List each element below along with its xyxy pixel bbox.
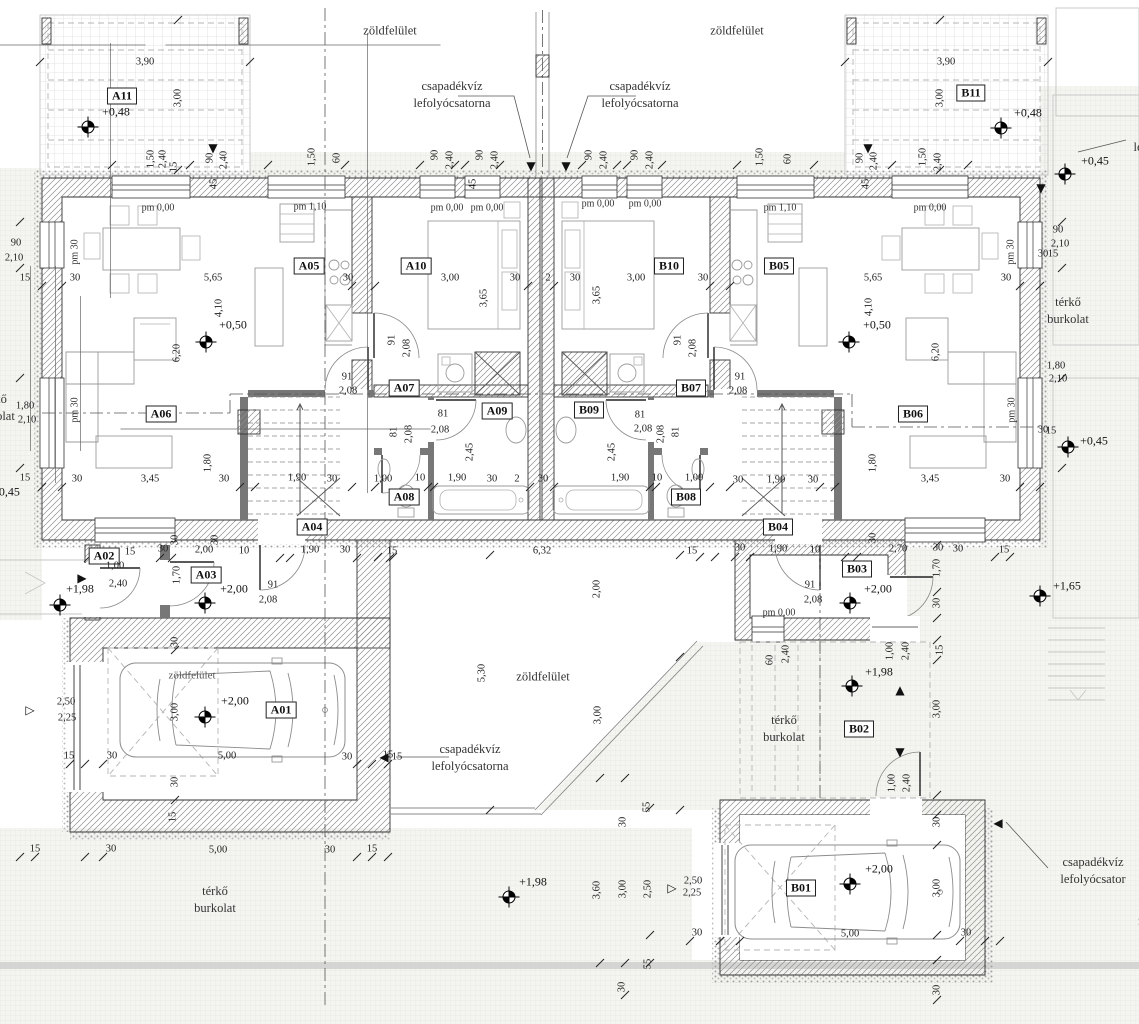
- survey-point-icon: [54, 599, 67, 612]
- dim-label: 2,40: [933, 153, 944, 171]
- dim-label: 1,50: [307, 148, 318, 166]
- dim-label: 91: [735, 372, 746, 383]
- area-label-line: csapadékvíz: [413, 78, 490, 95]
- dim-label: 91: [268, 580, 279, 591]
- level-label: +0,50: [863, 318, 891, 333]
- dim-label: 10: [652, 473, 663, 484]
- dim-label: 2,40: [490, 151, 501, 169]
- dim-label: 1,80: [203, 454, 214, 472]
- dim-label: 30: [325, 845, 336, 856]
- dim-label: 30: [342, 752, 353, 763]
- dim-label: 3,90: [136, 57, 154, 68]
- dim-label: 2: [514, 474, 519, 485]
- dim-label: 90: [430, 150, 441, 161]
- dim-label: 2,40: [158, 150, 169, 168]
- dim-label: 91: [387, 335, 398, 346]
- dim-label: 3,45: [141, 474, 159, 485]
- dim-label: 2,08: [259, 595, 277, 606]
- dim-label: 2,40: [445, 151, 456, 169]
- survey-point-icon: [1062, 441, 1075, 454]
- floor-plan: A11B11A05A10B10B05A06B06A07B07A09B09A08B…: [0, 0, 1139, 1024]
- dim-label: 90: [11, 238, 22, 249]
- area-label-line: zöldfelület: [516, 669, 569, 686]
- dim-label: 1,70: [932, 559, 943, 577]
- area-label: csapadékvízlefolyócsator: [1060, 854, 1125, 888]
- dim-label: 30: [1001, 273, 1012, 284]
- arrow-down-icon: ▼: [1036, 182, 1045, 194]
- dim-label: 1,00: [885, 642, 896, 660]
- dim-label: 2,08: [656, 425, 667, 443]
- area-label-line: burkolat: [1047, 311, 1089, 328]
- dim-label: 6,32: [533, 546, 551, 557]
- dim-label: 30: [692, 928, 703, 939]
- area-label-line: zöldfelület: [168, 670, 215, 683]
- parapet-label: pm 0,00: [914, 203, 947, 214]
- dim-label: 30: [170, 535, 181, 546]
- dim-label: 90: [630, 150, 641, 161]
- dim-label: 5,00: [209, 845, 227, 856]
- dim-label: 91: [673, 335, 684, 346]
- parapet-label: pm 0,00: [629, 199, 662, 210]
- room-tag-b10: B10: [654, 258, 684, 275]
- area-label-line: térkő: [763, 712, 805, 729]
- dim-label: 30: [932, 598, 943, 609]
- dim-label: 45: [861, 179, 872, 190]
- dim-label: 30: [327, 474, 338, 485]
- parapet-label: pm 0,00: [582, 199, 615, 210]
- dim-label: 30: [170, 637, 181, 648]
- dim-label: 30: [932, 817, 943, 828]
- level-label: +2,00: [865, 862, 893, 877]
- dim-label: 10: [239, 546, 250, 557]
- dim-label: 5,65: [204, 273, 222, 284]
- dim-label: 81: [389, 427, 400, 438]
- dim-label: 2,08: [804, 595, 822, 606]
- dim-label: 2,50: [643, 880, 654, 898]
- area-label-line: burkolat: [0, 408, 15, 425]
- area-label-line: burkolat: [763, 729, 805, 746]
- area-label-line: lefolyócsator: [1060, 871, 1125, 888]
- dim-label: 15: [1048, 249, 1059, 260]
- dim-label: 2,08: [634, 424, 652, 435]
- dim-label: 30: [487, 474, 498, 485]
- arrow-down-icon: ▼: [895, 746, 904, 758]
- dim-label: 1,90: [611, 473, 629, 484]
- survey-point-icon: [503, 891, 516, 904]
- area-label-line: burkolat: [194, 900, 236, 917]
- dim-label: 15: [125, 547, 136, 558]
- room-tag-b04: B04: [763, 519, 793, 536]
- dim-label: 1,80: [16, 401, 34, 412]
- dim-label: 60: [783, 154, 794, 165]
- room-tag-a09: A09: [482, 403, 513, 420]
- survey-point-icon: [1059, 168, 1072, 181]
- room-tag-b01: B01: [786, 880, 816, 897]
- dim-label: 6,20: [172, 344, 183, 362]
- area-label: zöldfelület: [168, 670, 215, 683]
- area-label: csapadékvízlefolyócsatorna: [601, 78, 678, 112]
- dim-label: 2,50: [57, 697, 75, 708]
- dim-label: 30: [808, 475, 819, 486]
- dim-label: 2,40: [109, 579, 127, 590]
- dim-label: 30: [538, 474, 549, 485]
- dim-label: 15: [392, 752, 403, 763]
- dim-label: 30: [107, 751, 118, 762]
- room-tag-b09: B09: [574, 402, 604, 419]
- dim-label: 2,10: [1049, 374, 1067, 385]
- dim-label: 1,70: [172, 566, 183, 584]
- level-label: +0,48: [1014, 106, 1042, 121]
- dim-label: 2,40: [901, 642, 912, 660]
- room-tag-a05: A05: [294, 258, 325, 275]
- level-label: +1,98: [865, 665, 893, 680]
- parapet-label: pm 30: [1007, 397, 1018, 422]
- dim-label: 1,00: [887, 774, 898, 792]
- dim-label: 30: [698, 273, 709, 284]
- dim-label: 81: [671, 427, 682, 438]
- dim-label: 2,00: [195, 545, 213, 556]
- area-label-line: zöldfelület: [363, 23, 416, 40]
- dim-label: 55: [642, 802, 653, 813]
- dim-label: 30: [961, 928, 972, 939]
- dim-label: 30: [340, 545, 351, 556]
- area-label: csapadékvízlefolyócsatorna: [413, 78, 490, 112]
- dim-label: 30: [70, 273, 81, 284]
- area-label-line: lefolyócsatorna: [601, 95, 678, 112]
- dim-label: 30: [617, 982, 628, 993]
- dim-label: 30: [1000, 474, 1011, 485]
- room-tag-a04: A04: [297, 519, 328, 536]
- dim-label: 30: [210, 535, 221, 546]
- area-label: csapadékvízlefolyócsatorna: [1133, 122, 1139, 156]
- dim-label: 3,65: [592, 286, 603, 304]
- dim-label: 55: [643, 959, 654, 970]
- dim-label: 45: [209, 179, 220, 190]
- room-tag-a10: A10: [401, 258, 432, 275]
- survey-point-icon: [199, 711, 212, 724]
- dim-label: 2,25: [58, 713, 76, 724]
- dim-label: 2,08: [729, 386, 747, 397]
- dim-label: 2,08: [404, 425, 415, 443]
- dim-label: 3,00: [593, 706, 604, 724]
- dim-label: 2,08: [339, 386, 357, 397]
- dim-label: 3,00: [170, 703, 181, 721]
- dim-label: 2: [545, 273, 550, 284]
- room-tag-a06: A06: [146, 406, 177, 423]
- dim-label: 3,00: [627, 273, 645, 284]
- dim-label: 30: [1038, 249, 1049, 260]
- dim-label: 91: [342, 372, 353, 383]
- dim-label: 2,45: [607, 443, 618, 461]
- area-label: zöldfelület: [363, 23, 416, 40]
- dim-label: 1,90: [769, 544, 787, 555]
- dim-label: 2,40: [599, 151, 610, 169]
- dim-label: 3,00: [935, 89, 946, 107]
- room-tag-b02: B02: [844, 721, 874, 738]
- dim-label: 1,50: [146, 150, 157, 168]
- dim-label: 15: [387, 546, 398, 557]
- room-tag-b03: B03: [842, 561, 872, 578]
- dim-label: 30: [868, 533, 879, 544]
- dim-label: 1,50: [918, 148, 929, 166]
- survey-point-icon: [82, 121, 95, 134]
- area-label: zöldfelület: [516, 669, 569, 686]
- level-label: +0,50: [219, 318, 247, 333]
- dim-label: 15: [20, 473, 31, 484]
- dim-label: 2,70: [889, 544, 907, 555]
- dim-label: 3,00: [618, 880, 629, 898]
- dim-label: 15: [30, 844, 41, 855]
- dim-label: 90: [1053, 225, 1064, 236]
- arrow-down-icon: ▼: [561, 160, 570, 172]
- dim-label: 2,40: [781, 645, 792, 663]
- dim-label: 2,40: [645, 151, 656, 169]
- dim-label: 30: [219, 474, 230, 485]
- room-tag-a01: A01: [266, 702, 297, 719]
- dim-label: 2,08: [688, 339, 699, 357]
- arrow-left-icon: ◀: [379, 751, 388, 763]
- dim-label: 2,50: [684, 876, 702, 887]
- parapet-label: pm 30: [1006, 239, 1017, 264]
- dim-label: 45: [468, 179, 479, 190]
- room-tag-b06: B06: [898, 406, 928, 423]
- survey-point-icon: [846, 680, 859, 693]
- dim-label: 3,00: [441, 273, 459, 284]
- dim-label: 1,90: [767, 475, 785, 486]
- level-label: +0,48: [102, 105, 130, 120]
- parapet-label: pm 30: [70, 397, 81, 422]
- dim-label: 15: [367, 844, 378, 855]
- parapet-label: pm 0,00: [471, 203, 504, 214]
- area-label: csapadékvízlefolyócsatorna: [431, 741, 508, 775]
- dim-label: 60: [332, 153, 343, 164]
- dim-label: 10: [415, 473, 426, 484]
- arrow-down-icon: ▼: [863, 142, 872, 154]
- area-label-line: csapadékvíz: [601, 78, 678, 95]
- area-label-line: térkő: [194, 883, 236, 900]
- arrow-openright-icon: ▷: [25, 704, 34, 716]
- area-label: térkőburkolat: [0, 391, 15, 425]
- dim-label: 1,90: [448, 473, 466, 484]
- level-label: +1,65: [1053, 579, 1081, 594]
- survey-point-icon: [844, 878, 857, 891]
- area-label: térkőburkolat: [194, 883, 236, 917]
- dim-label: 15: [168, 812, 179, 823]
- dim-label: 90: [584, 150, 595, 161]
- room-tag-a08: A08: [389, 489, 420, 506]
- parapet-label: pm 1,10: [294, 202, 327, 213]
- dim-label: 2,40: [902, 774, 913, 792]
- parapet-label: pm 0,00: [431, 203, 464, 214]
- dim-label: 81: [635, 410, 646, 421]
- dim-label: 30: [158, 544, 169, 555]
- dim-label: 5,00: [841, 929, 859, 940]
- area-label-line: lefolyócsatorna: [431, 758, 508, 775]
- dim-label: 1,50: [755, 148, 766, 166]
- level-label: +2,00: [864, 582, 892, 597]
- dim-label: 15: [1046, 426, 1057, 437]
- dim-label: 30: [933, 543, 944, 554]
- dim-label: 81: [438, 409, 449, 420]
- parapet-label: pm 1,10: [764, 203, 797, 214]
- dim-label: 15: [20, 273, 31, 284]
- level-label: +1,98: [519, 875, 547, 890]
- dim-label: 4,10: [214, 299, 225, 317]
- dim-label: 30: [106, 844, 117, 855]
- dim-label: 3,60: [592, 881, 603, 899]
- dim-label: 15: [64, 751, 75, 762]
- dim-label: 1,00: [685, 473, 703, 484]
- dim-label: 30: [570, 273, 581, 284]
- area-label-line: csapadékvíz: [431, 741, 508, 758]
- dim-label: 1,00: [106, 561, 124, 572]
- dim-label: 15: [935, 645, 946, 656]
- dim-label: 3,00: [932, 879, 943, 897]
- area-label-line: térkő: [1047, 294, 1089, 311]
- dim-label: 2,08: [431, 425, 449, 436]
- dim-label: 1,00: [374, 474, 392, 485]
- dim-label: 15: [169, 162, 180, 173]
- arrow-down-icon: ▼: [208, 142, 217, 154]
- dim-label: 5,30: [477, 664, 488, 682]
- arrow-left-icon: ◀: [993, 817, 1002, 829]
- dim-label: 91: [805, 580, 816, 591]
- level-label: +0,45: [0, 485, 20, 500]
- survey-point-icon: [844, 597, 857, 610]
- dim-label: 3,45: [921, 474, 939, 485]
- dim-label: 60: [765, 655, 776, 666]
- dim-label: 1,80: [868, 454, 879, 472]
- survey-point-icon: [1034, 590, 1047, 603]
- survey-point-icon: [199, 597, 212, 610]
- dim-label: 5,65: [864, 273, 882, 284]
- arrow-right-icon: ▶: [77, 572, 86, 584]
- level-label: +2,00: [220, 582, 248, 597]
- survey-point-icon: [200, 336, 213, 349]
- dim-label: 4,10: [864, 298, 875, 316]
- area-label: zöldfelület: [710, 23, 763, 40]
- arrow-openright-icon: ▷: [667, 882, 676, 894]
- room-tag-b05: B05: [764, 258, 794, 275]
- dim-label: 15: [999, 545, 1010, 556]
- dim-label: 3,00: [932, 700, 943, 718]
- area-label-line: zöldfelület: [710, 23, 763, 40]
- dim-label: 1,80: [1047, 361, 1065, 372]
- parapet-label: pm 30: [70, 239, 81, 264]
- dim-label: 2,45: [465, 443, 476, 461]
- dim-label: 3,65: [479, 289, 490, 307]
- area-label-line: térkő: [0, 391, 15, 408]
- dim-label: 2,08: [402, 339, 413, 357]
- room-tag-b07: B07: [676, 380, 706, 397]
- level-label: +0,45: [1080, 434, 1108, 449]
- survey-point-icon: [843, 336, 856, 349]
- dim-label: 30: [343, 273, 354, 284]
- dim-label: 30: [618, 817, 629, 828]
- dim-label: 30: [932, 985, 943, 996]
- area-label: térkőburkolat: [763, 712, 805, 746]
- area-label-line: lefolyócsatorna: [1133, 139, 1139, 156]
- dim-label: 2,10: [18, 415, 36, 426]
- dim-label: 15: [687, 546, 698, 557]
- dim-label: 30: [953, 544, 964, 555]
- dim-label: 2,40: [219, 151, 230, 169]
- room-tag-b11: B11: [956, 85, 985, 102]
- dim-label: 30: [733, 475, 744, 486]
- dim-label: 3,90: [937, 57, 955, 68]
- dim-label: 1,90: [288, 473, 306, 484]
- room-tag-a11: A11: [107, 88, 137, 105]
- room-tag-a07: A07: [389, 380, 420, 397]
- area-label-line: lefolyócsatorna: [413, 95, 490, 112]
- arrow-down-icon: ▼: [526, 160, 535, 172]
- dim-label: 30: [735, 543, 746, 554]
- area-label-line: csapadékvíz: [1060, 854, 1125, 871]
- level-label: +0,45: [1081, 154, 1109, 169]
- dim-label: 30: [510, 273, 521, 284]
- dim-label: 1,90: [301, 545, 319, 556]
- parapet-label: pm 0,00: [763, 608, 796, 619]
- dim-label: 3,00: [173, 89, 184, 107]
- room-tag-b08: B08: [671, 489, 701, 506]
- level-label: +2,00: [221, 694, 249, 709]
- room-tag-a03: A03: [191, 567, 222, 584]
- dim-label: 5,00: [218, 751, 236, 762]
- arrow-up-icon: ▲: [895, 684, 904, 696]
- area-label-line: csapadékvíz: [1133, 122, 1139, 139]
- dim-label: 10: [810, 545, 821, 556]
- parapet-label: pm 0,00: [142, 203, 175, 214]
- survey-point-icon: [995, 122, 1008, 135]
- dim-label: 2,10: [5, 253, 23, 264]
- plan-annotations: A11B11A05A10B10B05A06B06A07B07A09B09A08B…: [0, 0, 1139, 1024]
- dim-label: 30: [170, 777, 181, 788]
- dim-label: 90: [475, 150, 486, 161]
- dim-label: 30: [72, 474, 83, 485]
- dim-label: 2,00: [592, 580, 603, 598]
- dim-label: 6,20: [931, 343, 942, 361]
- area-label: térkőburkolat: [1047, 294, 1089, 328]
- dim-label: 2,25: [683, 888, 701, 899]
